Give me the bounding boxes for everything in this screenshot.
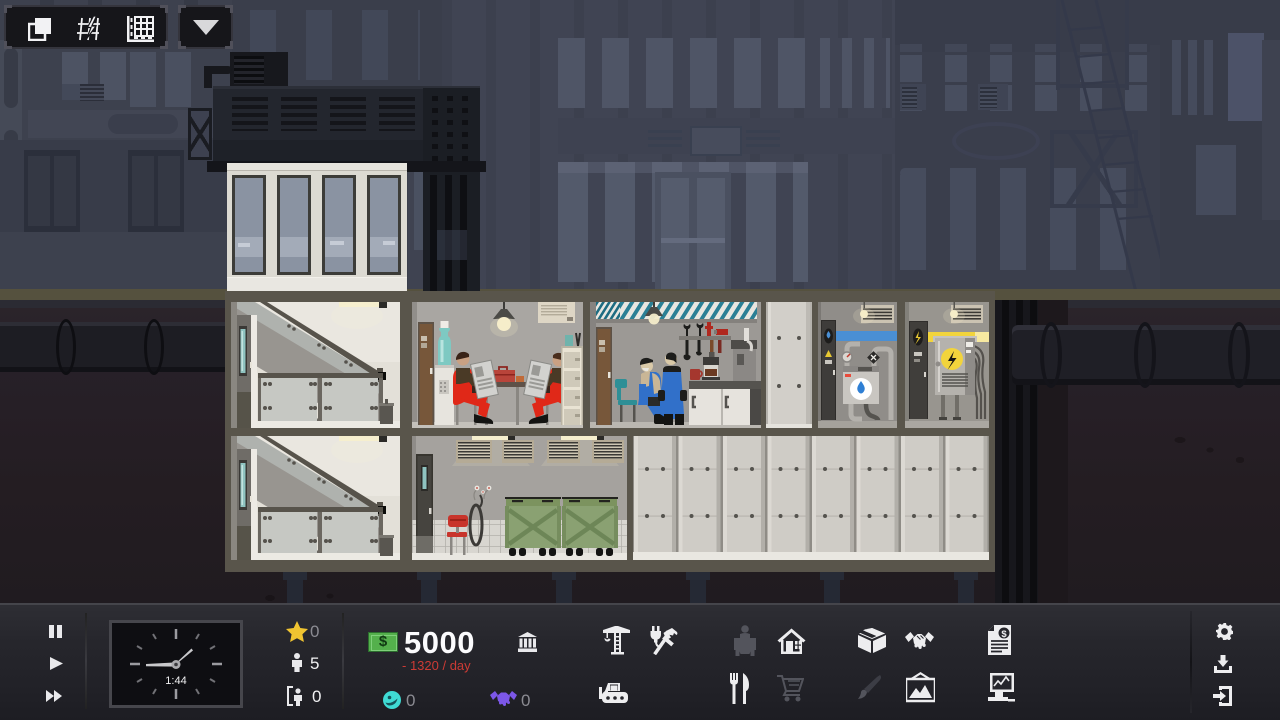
svg-text:$: $ xyxy=(1001,629,1007,640)
svg-text:1:44: 1:44 xyxy=(165,675,186,687)
